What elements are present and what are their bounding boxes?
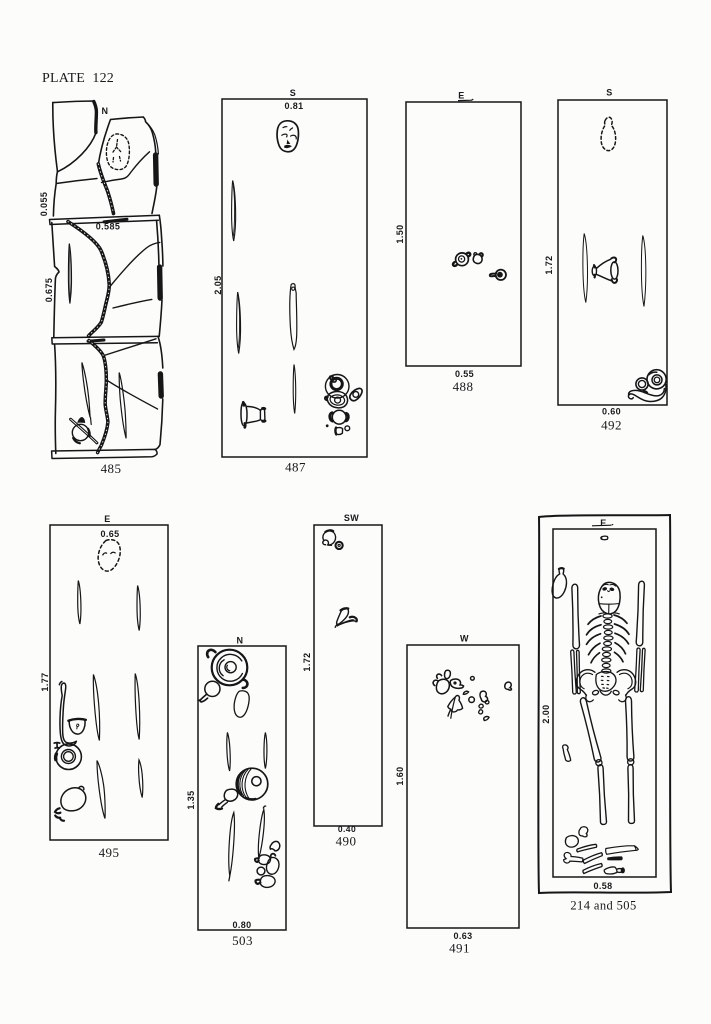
svg-text:1.50: 1.50 [395, 224, 405, 243]
svg-text:SW: SW [344, 513, 359, 523]
svg-text:S: S [290, 88, 296, 98]
svg-text:1.72: 1.72 [302, 652, 312, 671]
svg-text:E: E [600, 518, 606, 528]
svg-text:N: N [102, 106, 109, 116]
svg-text:N: N [237, 636, 244, 646]
svg-text:492: 492 [601, 418, 622, 433]
svg-text:0.40: 0.40 [338, 824, 356, 834]
svg-text:2.05: 2.05 [213, 275, 223, 294]
svg-text:1.72: 1.72 [544, 255, 554, 274]
svg-text:503: 503 [232, 933, 253, 948]
svg-text:2.00: 2.00 [541, 704, 551, 723]
svg-text:487: 487 [285, 460, 306, 475]
svg-text:PLATE 122: PLATE 122 [42, 71, 114, 86]
svg-text:1.77: 1.77 [40, 672, 50, 691]
svg-text:0.63: 0.63 [453, 931, 472, 941]
svg-text:0.58: 0.58 [593, 881, 612, 891]
svg-text:1.60: 1.60 [395, 766, 405, 785]
svg-text:0.80: 0.80 [232, 920, 251, 930]
svg-text:E: E [458, 91, 464, 101]
svg-text:1.35: 1.35 [186, 790, 196, 809]
svg-text:E: E [104, 514, 110, 524]
svg-text:490: 490 [336, 834, 357, 849]
svg-text:0.60: 0.60 [602, 407, 621, 417]
svg-text:488: 488 [453, 379, 474, 394]
svg-text:0.585: 0.585 [96, 222, 121, 232]
svg-text:S: S [606, 88, 612, 98]
svg-text:485: 485 [101, 461, 122, 476]
svg-text:0.55: 0.55 [455, 369, 474, 379]
svg-text:495: 495 [99, 845, 120, 860]
svg-text:0.65: 0.65 [100, 529, 119, 539]
svg-text:0.81: 0.81 [284, 101, 303, 111]
svg-text:214 and 505: 214 and 505 [570, 899, 636, 913]
svg-text:0.055: 0.055 [39, 192, 49, 217]
svg-text:0.675: 0.675 [44, 278, 54, 303]
svg-text:W: W [460, 634, 469, 644]
svg-text:491: 491 [449, 941, 470, 956]
